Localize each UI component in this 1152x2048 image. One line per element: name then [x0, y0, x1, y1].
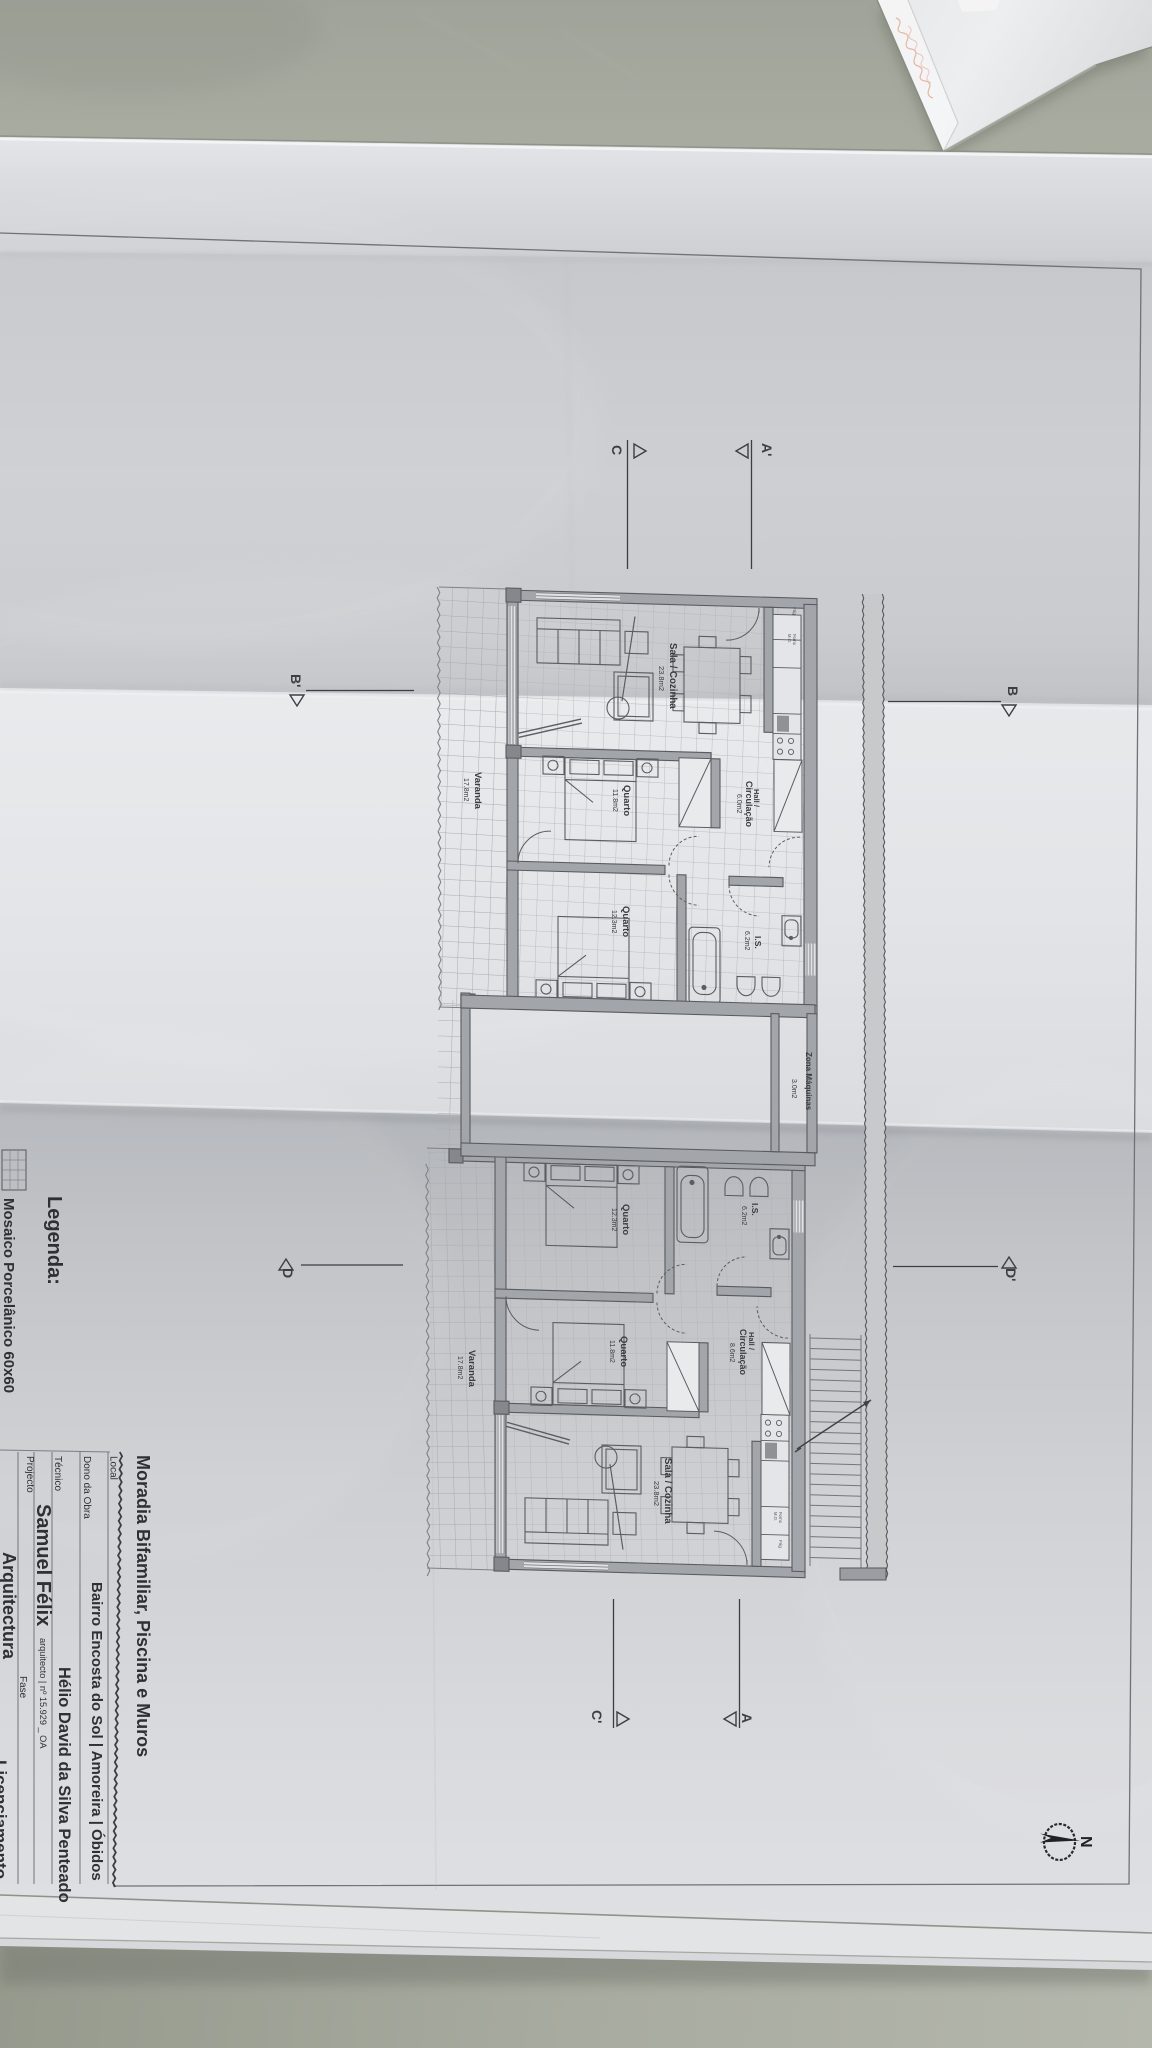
svg-text:8.6m2: 8.6m2	[728, 1343, 735, 1363]
svg-text:17.8m2: 17.8m2	[462, 778, 469, 801]
svg-text:A: A	[739, 1713, 755, 1723]
svg-text:12.3m2: 12.3m2	[610, 1208, 617, 1231]
svg-text:6.2m2: 6.2m2	[740, 1206, 747, 1226]
svg-text:6.2m2: 6.2m2	[743, 931, 750, 951]
svg-text:C: C	[609, 445, 625, 455]
svg-text:Hélio David da Silva Penteado: Hélio David da Silva Penteado	[55, 1667, 73, 1903]
svg-text:23.8m2: 23.8m2	[657, 666, 666, 691]
svg-text:Moradia Bifamiliar, Piscina e: Moradia Bifamiliar, Piscina e Muros	[133, 1455, 153, 1757]
svg-text:Quarto: Quarto	[620, 906, 631, 937]
svg-text:Sala / Cozinha: Sala / Cozinha	[667, 643, 678, 709]
svg-text:I.S.: I.S.	[750, 1203, 760, 1216]
svg-text:Varanda: Varanda	[466, 1350, 477, 1388]
svg-text:Técnico: Técnico	[52, 1456, 63, 1491]
svg-text:Samuel Félix: Samuel Félix	[32, 1504, 54, 1626]
svg-text:3.0m2: 3.0m2	[790, 1079, 797, 1099]
svg-text:17.8m2: 17.8m2	[456, 1356, 463, 1379]
svg-text:D': D'	[1003, 1268, 1019, 1281]
svg-text:Quarto: Quarto	[618, 1336, 629, 1367]
svg-text:Zona Máquinas: Zona Máquinas	[804, 1052, 813, 1111]
svg-text:Circulação: Circulação	[738, 1329, 748, 1376]
svg-text:Sala / Cozinha: Sala / Cozinha	[662, 1458, 673, 1524]
svg-text:I.S.: I.S.	[753, 936, 763, 949]
svg-text:6.0m2: 6.0m2	[735, 794, 742, 814]
svg-text:A': A'	[759, 443, 775, 456]
svg-text:Frig: Frig	[792, 607, 797, 615]
svg-text:11.8m2: 11.8m2	[611, 789, 618, 812]
svg-text:N: N	[1077, 1836, 1094, 1848]
svg-text:B: B	[1005, 686, 1021, 696]
svg-text:Dono da Obra: Dono da Obra	[81, 1456, 92, 1519]
svg-text:Quarto: Quarto	[621, 785, 632, 816]
svg-text:Varanda: Varanda	[472, 772, 483, 810]
svg-text:12.3m2: 12.3m2	[610, 910, 617, 933]
svg-text:Legenda:: Legenda:	[43, 1196, 65, 1285]
svg-text:23.8m2: 23.8m2	[652, 1481, 661, 1506]
svg-text:Arquitectura: Arquitectura	[0, 1552, 19, 1660]
svg-text:Circulação: Circulação	[744, 781, 754, 828]
svg-text:Fase: Fase	[17, 1676, 28, 1699]
svg-text:Local: Local	[108, 1456, 119, 1480]
svg-text:C': C'	[589, 1710, 605, 1723]
svg-text:Licenciamento: Licenciamento	[0, 1760, 10, 1879]
svg-text:11.8m2: 11.8m2	[608, 1340, 615, 1363]
svg-text:Mosaico Porcelânico 60x60: Mosaico Porcelânico 60x60	[0, 1198, 17, 1393]
svg-text:Projecto: Projecto	[24, 1456, 35, 1493]
svg-text:Bairro Encosta do Sol | Amorei: Bairro Encosta do Sol | Amoreira | Óbido…	[88, 1582, 106, 1881]
svg-text:arquitecto | nº 15.929 _ OA: arquitecto | nº 15.929 _ OA	[38, 1638, 48, 1749]
svg-text:Frig: Frig	[778, 1540, 783, 1548]
svg-text:M.O.: M.O.	[787, 634, 792, 643]
svg-text:B': B'	[288, 674, 304, 687]
svg-text:Quarto: Quarto	[620, 1204, 631, 1235]
svg-text:M.O.: M.O.	[773, 1512, 778, 1521]
